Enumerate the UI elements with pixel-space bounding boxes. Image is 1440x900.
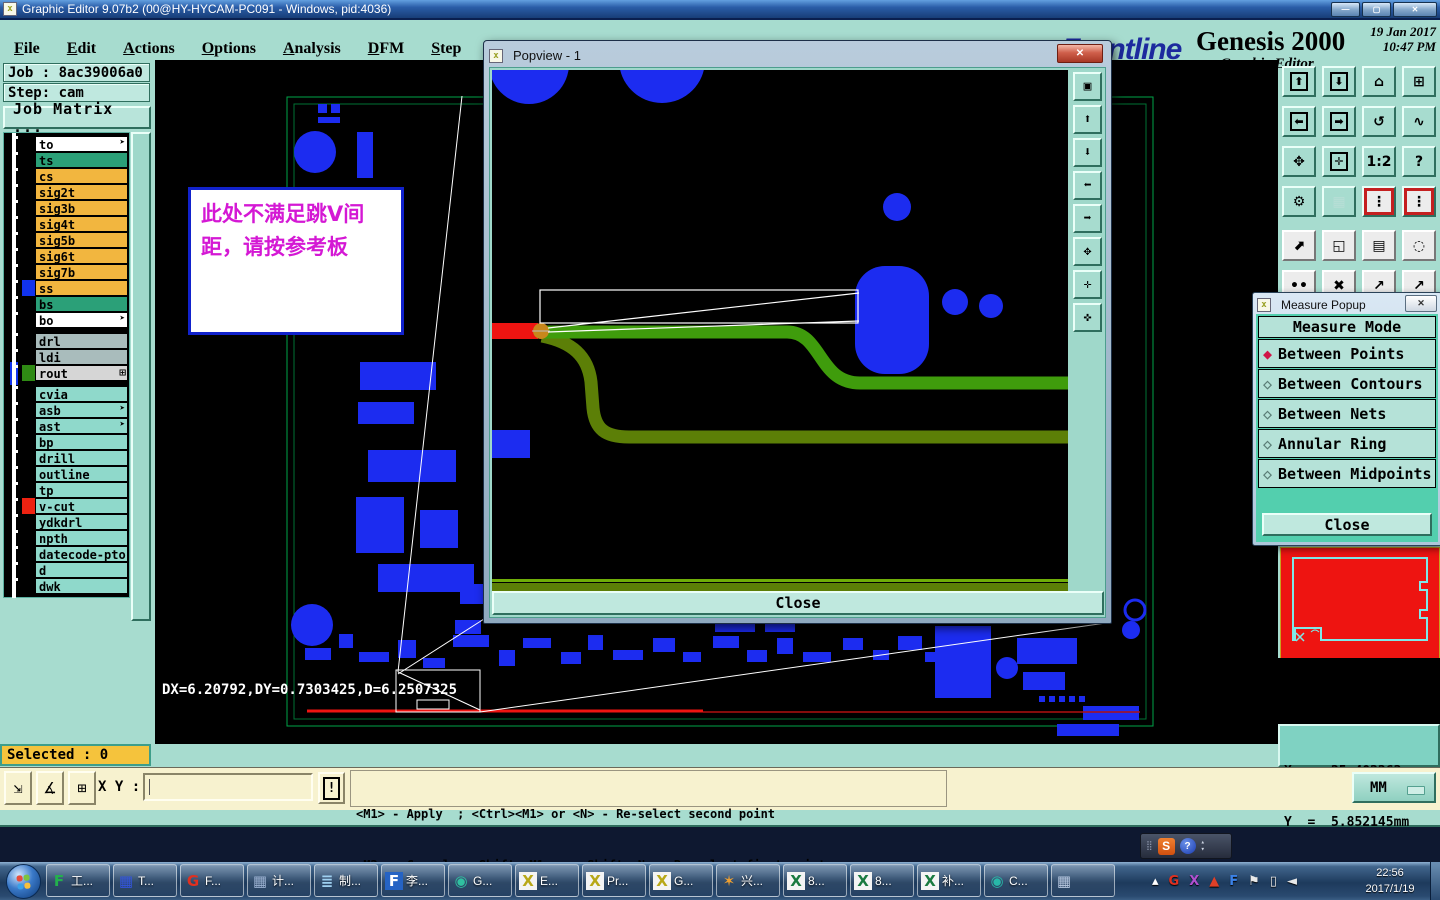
move-object-icon[interactable]: ⬈ bbox=[1282, 230, 1316, 261]
task-label: G... bbox=[674, 874, 693, 888]
layer-name[interactable]: cs bbox=[35, 168, 128, 184]
layer-color-swatch bbox=[22, 386, 35, 402]
layer-list: to➤ ts cs sig2t bbox=[3, 132, 130, 598]
layer-color-swatch bbox=[22, 450, 35, 466]
task-foxmail[interactable]: F 工... bbox=[46, 864, 110, 897]
layer-row[interactable]: datecode-pto bbox=[5, 546, 128, 562]
layer-color-swatch bbox=[22, 546, 35, 562]
signal-lights-icon[interactable]: ⋮ bbox=[1362, 186, 1396, 217]
task-notes[interactable]: ≣ 制... bbox=[314, 864, 378, 897]
hint-line-1: <M1> - Apply ; <Ctrl><M1> or <N> - Re-se… bbox=[356, 806, 941, 823]
signal-lights2-icon[interactable]: ⋮ bbox=[1402, 186, 1436, 217]
grid-icon[interactable]: ▦ bbox=[1322, 186, 1356, 217]
clock-time: 22:56 bbox=[1352, 865, 1428, 881]
window-controls: —▢✕ bbox=[1331, 2, 1437, 17]
task-app-icon: ◉ bbox=[452, 872, 470, 890]
task-excel-2[interactable]: X 8... bbox=[850, 864, 914, 897]
layer-name[interactable]: bo➤ bbox=[35, 312, 128, 328]
layer-color-swatch bbox=[22, 562, 35, 578]
task-cd[interactable]: ◉ C... bbox=[984, 864, 1048, 897]
measure-mode-option[interactable]: ◆ Between Points bbox=[1258, 339, 1436, 368]
task-app-icon: F bbox=[385, 872, 403, 890]
undo-view-icon[interactable]: ↺ bbox=[1362, 106, 1396, 137]
layer-color-swatch bbox=[22, 482, 35, 498]
layer-row[interactable]: bs bbox=[5, 296, 128, 312]
task-label: 补... bbox=[942, 872, 964, 889]
popview-close-button[interactable]: Close bbox=[492, 591, 1104, 615]
ime-grip-icon[interactable]: ⣿ bbox=[1146, 841, 1153, 851]
pan-left-icon[interactable]: ⬅ bbox=[1073, 171, 1102, 200]
overview-outline-art bbox=[1281, 548, 1437, 656]
grid-mode-icon[interactable]: ⊞ bbox=[68, 771, 96, 805]
popview-toolbar: ▣⬆⬇⬅➡✥✛✜ bbox=[1071, 70, 1104, 588]
radio-diamond-icon[interactable]: ◆ bbox=[1263, 345, 1272, 363]
layer-color-swatch bbox=[22, 168, 35, 184]
measure-popup-title: Measure Popup bbox=[1281, 298, 1366, 312]
layer-active-icon: ➤ bbox=[120, 404, 125, 414]
ime-help-icon[interactable]: ? bbox=[1180, 838, 1196, 854]
window-title: Graphic Editor 9.07b2 (00@HY-HYCAM-PC091… bbox=[22, 2, 391, 16]
measure-mode-label: Between Points bbox=[1278, 345, 1404, 363]
task-app-icon: X bbox=[854, 872, 872, 890]
layer-name[interactable]: ast➤ bbox=[35, 418, 128, 434]
zoom-extents-icon[interactable]: ✥ bbox=[1282, 146, 1316, 177]
task-app-icon: ▦ bbox=[251, 872, 269, 890]
popview-frame: ▣⬆⬇⬅➡✥✛✜ Close bbox=[489, 67, 1106, 618]
measure-mode-label: Annular Ring bbox=[1278, 435, 1386, 453]
layer-color-swatch bbox=[22, 280, 35, 296]
pad-select-icon[interactable]: ◌ bbox=[1402, 230, 1436, 261]
layer-row[interactable]: ldi bbox=[5, 349, 128, 365]
popview-close-icon[interactable]: ✕ bbox=[1057, 44, 1103, 63]
scale-1-2-icon[interactable]: 1:2 bbox=[1362, 146, 1396, 177]
xy-label: X Y : bbox=[98, 779, 140, 795]
task-app-icon: G bbox=[184, 872, 202, 890]
start-button[interactable] bbox=[6, 864, 41, 899]
measure-mode-header: Measure Mode bbox=[1258, 316, 1436, 338]
layer-color-swatch bbox=[22, 578, 35, 594]
menu-item[interactable]: DFM bbox=[368, 40, 404, 58]
layer-grid-icon: ⊞ bbox=[119, 366, 126, 379]
task-app-icon: F bbox=[50, 872, 68, 890]
layer-name[interactable]: sig3b bbox=[35, 200, 128, 216]
layer-row[interactable]: asb➤ bbox=[5, 402, 128, 418]
close-button[interactable]: ✕ bbox=[1393, 2, 1437, 17]
popview-title: Popview - 1 bbox=[513, 48, 581, 63]
layer-row[interactable]: sig2t bbox=[5, 184, 128, 200]
command-bar: ⇲ ∡ ⊞ X Y : ! <M1> - Apply ; <Ctrl><M1> … bbox=[0, 767, 1440, 810]
window-titlebar: x Graphic Editor 9.07b2 (00@HY-HYCAM-PC0… bbox=[0, 0, 1440, 18]
zoom-extents-icon[interactable]: ✥ bbox=[1073, 237, 1102, 266]
xy-window-icon[interactable]: ⊞ bbox=[1402, 66, 1436, 97]
layer-name[interactable]: ss bbox=[35, 280, 128, 296]
pan-left-icon[interactable]: ⬅ bbox=[1282, 106, 1316, 137]
measure-popup-ic: x bbox=[1257, 298, 1271, 312]
layer-color-swatch bbox=[22, 333, 35, 349]
layer-name[interactable]: bs bbox=[35, 296, 128, 312]
radio-diamond-icon[interactable]: ◇ bbox=[1263, 435, 1272, 453]
resize-mode-icon[interactable]: ⇲ bbox=[4, 771, 32, 805]
show-desktop-button[interactable] bbox=[1430, 862, 1440, 900]
measure-mode-label: Between Contours bbox=[1278, 375, 1423, 393]
layer-color-swatch bbox=[22, 402, 35, 418]
layer-name[interactable]: d bbox=[35, 562, 128, 578]
task-app-icon: X bbox=[653, 872, 671, 890]
layer-row[interactable]: v-cut bbox=[5, 498, 128, 514]
side-panel-gap bbox=[1278, 658, 1440, 724]
serpentine-icon[interactable]: ∿ bbox=[1402, 106, 1436, 137]
measure-popup-close-button[interactable]: Close bbox=[1262, 513, 1432, 536]
radio-diamond-icon[interactable]: ◇ bbox=[1263, 405, 1272, 423]
layer-row[interactable]: drill bbox=[5, 450, 128, 466]
layer-name[interactable]: to➤ bbox=[35, 136, 128, 152]
task-label: 计... bbox=[272, 872, 294, 889]
xy-coordinate-input[interactable] bbox=[143, 773, 313, 801]
date-text: 19 Jan 2017 bbox=[1340, 24, 1436, 39]
task-app-icon: ≣ bbox=[318, 872, 336, 890]
layer-color-swatch bbox=[22, 200, 35, 216]
layer-name[interactable]: cvia bbox=[35, 386, 128, 402]
layer-row[interactable]: sig6t bbox=[5, 248, 128, 264]
dfm-annotation-note: 此处不满足跳V间距，请按参考板 bbox=[188, 187, 404, 335]
ime-toolbar: ⣿ S ? ▴▾ bbox=[1140, 833, 1232, 859]
layer-color-swatch bbox=[22, 498, 35, 514]
layer-name[interactable]: drill bbox=[35, 450, 128, 466]
tray-network-icon[interactable]: ▯ bbox=[1270, 874, 1277, 889]
measure-mode-list: ◆ Between Points ◇ Between Contours ◇ Be… bbox=[1258, 339, 1436, 488]
taskbar-items: F 工... ▦ T... G F... ▦ 计... bbox=[46, 864, 1115, 897]
zoom-out-icon[interactable]: ⬇ bbox=[1073, 138, 1102, 167]
task-label: 8... bbox=[808, 874, 825, 888]
tools-icon[interactable]: ⚙ bbox=[1282, 186, 1316, 217]
measure-mode-option[interactable]: ◇ Between Contours bbox=[1258, 369, 1436, 398]
measure-mode-option[interactable]: ◇ Between Nets bbox=[1258, 399, 1436, 428]
layer-row[interactable]: ydkdrl bbox=[5, 514, 128, 530]
layer-name[interactable]: npth bbox=[35, 530, 128, 546]
popview-icon: x bbox=[489, 49, 503, 63]
layer-name[interactable]: sig4t bbox=[35, 216, 128, 232]
layer-color-swatch bbox=[22, 530, 35, 546]
layer-color-swatch bbox=[22, 434, 35, 450]
menu-item[interactable]: Analysis bbox=[283, 40, 341, 58]
cursor-y: Y = 5.852145mm bbox=[1284, 814, 1434, 831]
tray-g-icon[interactable]: G bbox=[1169, 874, 1180, 889]
task-label: Pr... bbox=[607, 874, 628, 888]
layer-name[interactable]: asb➤ bbox=[35, 402, 128, 418]
layer-row[interactable]: ts bbox=[5, 152, 128, 168]
layer-row[interactable]: sig4t bbox=[5, 216, 128, 232]
menu-item[interactable]: Actions bbox=[123, 40, 175, 58]
layer-name[interactable]: ts bbox=[35, 152, 128, 168]
task-label: T... bbox=[138, 874, 154, 888]
layer-color-swatch bbox=[22, 365, 35, 381]
layer-active-icon: ➤ bbox=[120, 420, 125, 430]
task-xwin-g[interactable]: X G... bbox=[649, 864, 713, 897]
view-toolbar: ⬆⬇⌂⊞⬅➡↺∿✥✛1:2?⚙▦⋮⋮ bbox=[1282, 66, 1436, 217]
cursor-position-readout: X = 25.402262mm Y = 5.852145mm bbox=[1278, 724, 1440, 767]
product-name: Genesis 2000 bbox=[1196, 26, 1345, 57]
layer-row[interactable]: sig7b bbox=[5, 264, 128, 280]
menu-item[interactable]: File bbox=[14, 40, 40, 58]
genesis-2000-app: x Graphic Editor 9.07b2 (00@HY-HYCAM-PC0… bbox=[0, 0, 1440, 900]
help-icon[interactable]: ? bbox=[1402, 146, 1436, 177]
task-label: C... bbox=[1009, 874, 1028, 888]
measure-mode-label: Between Midpoints bbox=[1278, 465, 1432, 483]
hint-message-box: <M1> - Apply ; <Ctrl><M1> or <N> - Re-se… bbox=[350, 770, 947, 807]
layer-name[interactable]: tp bbox=[35, 482, 128, 498]
layer-row[interactable]: d bbox=[5, 562, 128, 578]
task-label: 兴... bbox=[741, 872, 763, 889]
layer-checkbox[interactable] bbox=[5, 312, 22, 328]
task-excel-1[interactable]: X 8... bbox=[783, 864, 847, 897]
tray-triangle-icon[interactable]: ▲ bbox=[1209, 874, 1219, 889]
layer-color-swatch bbox=[22, 232, 35, 248]
task-app-icon: X bbox=[787, 872, 805, 890]
tray-flag-icon[interactable]: ⚑ bbox=[1248, 874, 1260, 889]
layer-color-swatch bbox=[22, 349, 35, 365]
pan-right-icon[interactable]: ➡ bbox=[1073, 204, 1102, 233]
maximize-button[interactable]: ▢ bbox=[1362, 2, 1391, 17]
layer-name[interactable]: ydkdrl bbox=[35, 514, 128, 530]
task-label: 工... bbox=[71, 872, 93, 889]
tray-volume-icon[interactable]: ◄ bbox=[1287, 874, 1297, 889]
task-app-icon: X bbox=[586, 872, 604, 890]
layer-color-swatch bbox=[22, 466, 35, 482]
task-xwin-pr[interactable]: X Pr... bbox=[582, 864, 646, 897]
layer-color-swatch bbox=[22, 296, 35, 312]
app-icon: x bbox=[3, 2, 17, 16]
pan-free-icon[interactable]: ✜ bbox=[1073, 303, 1102, 332]
zoom-center-icon[interactable]: ✛ bbox=[1322, 146, 1356, 177]
popview-titlebar[interactable]: x Popview - 1 bbox=[484, 41, 1111, 67]
task-label: E... bbox=[540, 874, 558, 888]
task-label: 8... bbox=[875, 874, 892, 888]
measure-popup-close-icon[interactable]: ✕ bbox=[1405, 295, 1437, 312]
zoom-in-icon[interactable]: ⬆ bbox=[1073, 105, 1102, 134]
layer-name[interactable]: dwk bbox=[35, 578, 128, 594]
task-app-icon: ▦ bbox=[117, 872, 135, 890]
time-text: 10:47 PM bbox=[1340, 39, 1436, 54]
popview-canvas[interactable] bbox=[492, 70, 1068, 595]
radio-diamond-icon[interactable]: ◇ bbox=[1263, 465, 1272, 483]
task-flashget[interactable]: G F... bbox=[180, 864, 244, 897]
windows-flag-icon bbox=[16, 874, 31, 889]
task-label: 制... bbox=[339, 872, 361, 889]
layer-row[interactable]: ast➤ bbox=[5, 418, 128, 434]
task-label: G... bbox=[473, 874, 492, 888]
layer-name[interactable]: sig7b bbox=[35, 264, 128, 280]
popview-window: x Popview - 1 ✕ bbox=[483, 40, 1112, 624]
task-f-tile[interactable]: F 李... bbox=[381, 864, 445, 897]
zoom-in-icon[interactable]: ⬆ bbox=[1282, 66, 1316, 97]
zoom-center-icon[interactable]: ✛ bbox=[1073, 270, 1102, 299]
layer-row[interactable]: to➤ bbox=[5, 136, 128, 152]
ime-expand-icon[interactable]: ▴▾ bbox=[1201, 839, 1205, 853]
layer-scrollbar[interactable] bbox=[131, 132, 151, 621]
zoom-out-icon[interactable]: ⬇ bbox=[1322, 66, 1356, 97]
angle-mode-icon[interactable]: ∡ bbox=[36, 771, 64, 805]
layer-color-swatch bbox=[22, 216, 35, 232]
radio-diamond-icon[interactable]: ◇ bbox=[1263, 375, 1272, 393]
layer-name[interactable]: sig6t bbox=[35, 248, 128, 264]
board-overview-map[interactable] bbox=[1280, 547, 1440, 659]
units-toggle-button[interactable]: MM bbox=[1352, 772, 1436, 803]
tray-expand-icon[interactable]: ▴ bbox=[1152, 874, 1159, 889]
datetime-display: 19 Jan 2017 10:47 PM bbox=[1340, 24, 1436, 54]
task-app-icon: ✶ bbox=[720, 872, 738, 890]
layer-name[interactable]: ldi bbox=[35, 349, 128, 365]
layer-active-icon: ➤ bbox=[120, 138, 125, 148]
layer-row[interactable]: bo➤ bbox=[5, 312, 128, 328]
popview-canvas-art bbox=[492, 70, 1068, 595]
layer-name[interactable]: sig2t bbox=[35, 184, 128, 200]
task-media[interactable]: ◉ G... bbox=[448, 864, 512, 897]
layer-row[interactable]: outline bbox=[5, 466, 128, 482]
layer-checkbox[interactable] bbox=[5, 578, 22, 594]
layer-row[interactable]: tp bbox=[5, 482, 128, 498]
job-matrix-button[interactable]: Job Matrix ... bbox=[3, 106, 151, 129]
layer-color-swatch bbox=[22, 136, 35, 152]
layer-row[interactable]: ss bbox=[5, 280, 128, 296]
layer-name[interactable]: v-cut bbox=[35, 498, 128, 514]
ruler-icon[interactable]: ▤ bbox=[1362, 230, 1396, 261]
menu-item[interactable]: Edit bbox=[67, 40, 96, 58]
clock-date: 2017/1/19 bbox=[1352, 881, 1428, 897]
task-app-icon: X bbox=[921, 872, 939, 890]
units-indicator-icon bbox=[1407, 786, 1425, 795]
layer-row[interactable]: sig5b bbox=[5, 232, 128, 248]
task-xwin-e[interactable]: X E... bbox=[515, 864, 579, 897]
menu-item[interactable]: Options bbox=[202, 40, 256, 58]
text-caret bbox=[149, 779, 150, 795]
measure-mode-option[interactable]: ◇ Annular Ring bbox=[1258, 429, 1436, 458]
layer-name[interactable]: rout⊞ bbox=[35, 365, 128, 381]
system-tray: ▴GX▲F⚑▯◄ bbox=[1152, 862, 1297, 900]
home-view-icon[interactable]: ⌂ bbox=[1362, 66, 1396, 97]
selected-count: Selected : 0 bbox=[0, 744, 151, 766]
layer-color-swatch bbox=[22, 312, 35, 328]
windows-taskbar: F 工... ▦ T... G F... ▦ 计... bbox=[0, 862, 1440, 900]
layer-active-icon: ➤ bbox=[120, 314, 125, 324]
tray-f-icon[interactable]: F bbox=[1229, 874, 1238, 889]
task-shell[interactable]: ✶ 兴... bbox=[716, 864, 780, 897]
layer-row[interactable]: bp bbox=[5, 434, 128, 450]
alert-button[interactable]: ! bbox=[318, 772, 345, 804]
layer-name[interactable]: drl bbox=[35, 333, 128, 349]
measure-mode-label: Between Nets bbox=[1278, 405, 1386, 423]
task-app-icon: ▦ bbox=[1055, 872, 1073, 890]
layer-name[interactable]: bp bbox=[35, 434, 128, 450]
layer-row[interactable]: cvia bbox=[5, 386, 128, 402]
task-app-icon: ◉ bbox=[988, 872, 1006, 890]
job-name-box: Job : 8ac39006a0 bbox=[3, 63, 150, 82]
layer-name[interactable]: sig5b bbox=[35, 232, 128, 248]
layer-row[interactable]: sig3b bbox=[5, 200, 128, 216]
duplicate-view-icon[interactable]: ▣ bbox=[1073, 72, 1102, 101]
measure-popup-body: Measure Mode ◆ Between Points ◇ Between … bbox=[1256, 314, 1438, 542]
task-calculator[interactable]: ▦ 计... bbox=[247, 864, 311, 897]
measure-popup-window: x Measure Popup ✕ Measure Mode ◆ Between… bbox=[1252, 292, 1440, 546]
layer-row[interactable]: cs bbox=[5, 168, 128, 184]
layer-color-swatch bbox=[22, 152, 35, 168]
task-excel-3[interactable]: X 补... bbox=[917, 864, 981, 897]
ime-sogou-icon[interactable]: S bbox=[1158, 838, 1175, 855]
task-label: F... bbox=[205, 874, 221, 888]
layer-color-swatch bbox=[22, 184, 35, 200]
measure-mode-option[interactable]: ◇ Between Midpoints bbox=[1258, 459, 1436, 488]
layer-color-swatch bbox=[22, 248, 35, 264]
layer-color-swatch bbox=[22, 264, 35, 280]
minimize-button[interactable]: — bbox=[1331, 2, 1360, 17]
pan-right-icon[interactable]: ➡ bbox=[1322, 106, 1356, 137]
layer-color-swatch bbox=[22, 514, 35, 530]
layer-row[interactable]: dwk bbox=[5, 578, 128, 594]
layer-row[interactable]: npth bbox=[5, 530, 128, 546]
tray-x-icon[interactable]: X bbox=[1189, 874, 1199, 889]
layer-row[interactable]: rout⊞ bbox=[5, 365, 128, 381]
menu-item[interactable]: Step bbox=[431, 40, 461, 58]
layer-name[interactable]: datecode-pto bbox=[35, 546, 128, 562]
layer-name[interactable]: outline bbox=[35, 466, 128, 482]
taskbar-clock[interactable]: 22:56 2017/1/19 bbox=[1352, 865, 1428, 897]
task-app-icon: X bbox=[519, 872, 537, 890]
frame-select-icon[interactable]: ◱ bbox=[1322, 230, 1356, 261]
measure-delta-readout: DX=6.20792,DY=0.7303425,D=6.2507325 bbox=[162, 682, 457, 698]
task-calc2[interactable]: ▦ bbox=[1051, 864, 1115, 897]
layer-checkbox[interactable] bbox=[5, 365, 22, 381]
task-save[interactable]: ▦ T... bbox=[113, 864, 177, 897]
edit-toolbar: ⬈◱▤◌••✖↗↗ bbox=[1282, 230, 1436, 301]
layer-row[interactable]: drl bbox=[5, 333, 128, 349]
task-label: 李... bbox=[406, 872, 428, 889]
layer-color-swatch bbox=[22, 418, 35, 434]
